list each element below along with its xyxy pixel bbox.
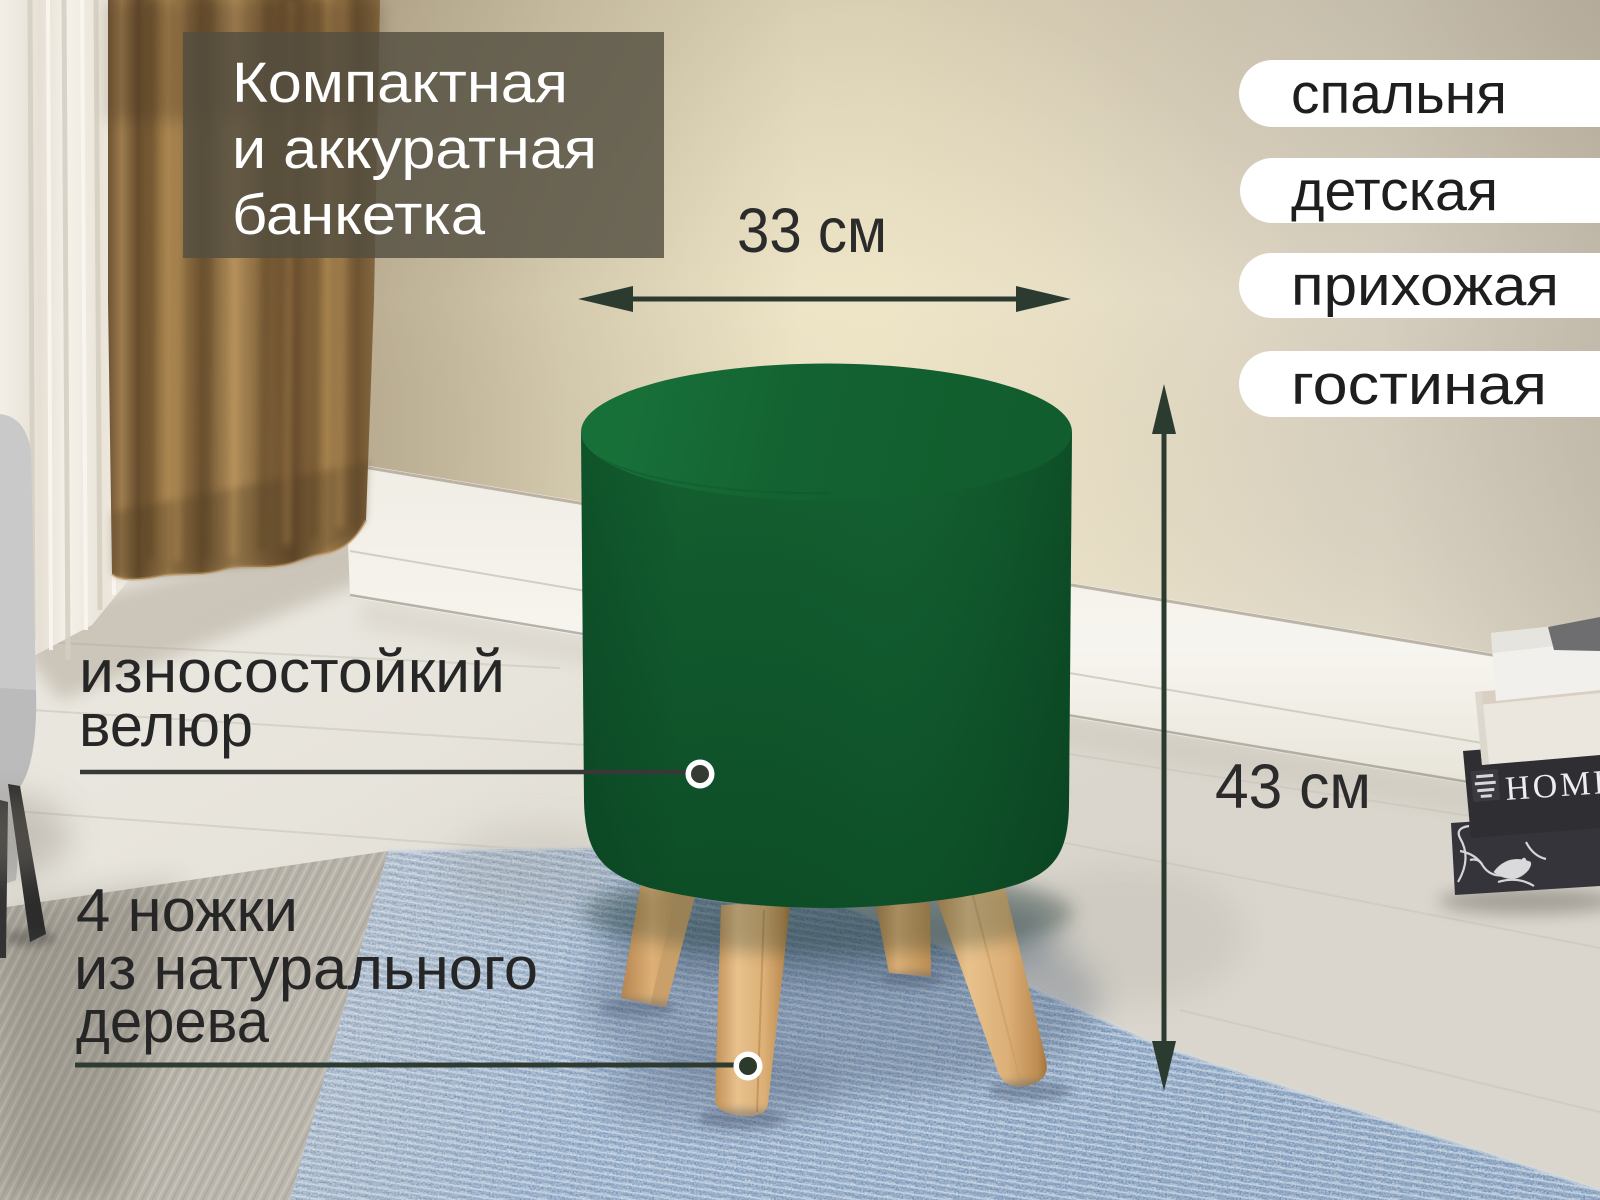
svg-text:и аккуратная: и аккуратная	[232, 117, 597, 181]
svg-text:детская: детская	[1291, 159, 1498, 223]
svg-text:4 ножки: 4 ножки	[76, 877, 298, 944]
svg-text:дерева: дерева	[76, 988, 270, 1055]
svg-text:33 см: 33 см	[737, 196, 887, 266]
svg-text:Компактная: Компактная	[232, 51, 568, 115]
svg-text:43 см: 43 см	[1215, 752, 1371, 822]
svg-text:HOME: HOME	[1504, 763, 1600, 808]
svg-text:спальня: спальня	[1291, 62, 1507, 126]
svg-text:банкетка: банкетка	[232, 183, 485, 247]
svg-text:гостиная: гостиная	[1291, 353, 1547, 417]
svg-text:велюр: велюр	[79, 692, 253, 759]
svg-text:прихожая: прихожая	[1291, 254, 1559, 318]
